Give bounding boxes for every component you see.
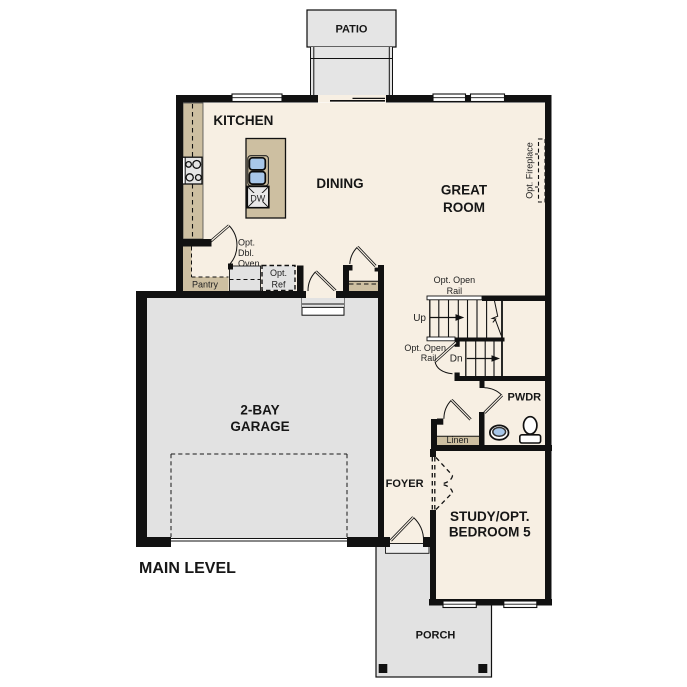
svg-text:Opt. Fireplace: Opt. Fireplace xyxy=(525,142,535,199)
svg-text:Opt. Open: Opt. Open xyxy=(434,275,476,285)
svg-text:Opt.: Opt. xyxy=(238,238,255,248)
svg-text:Opt. Open: Opt. Open xyxy=(404,343,446,353)
svg-text:Dn: Dn xyxy=(450,354,463,365)
svg-text:Pantry: Pantry xyxy=(192,280,219,290)
svg-text:FOYER: FOYER xyxy=(386,478,424,490)
svg-text:GARAGE: GARAGE xyxy=(230,419,289,434)
svg-text:DW: DW xyxy=(250,193,265,203)
svg-text:Oven: Oven xyxy=(238,259,260,269)
svg-text:MAIN LEVEL: MAIN LEVEL xyxy=(139,560,236,577)
svg-text:Linen: Linen xyxy=(446,435,468,445)
svg-text:ROOM: ROOM xyxy=(443,200,485,215)
svg-text:GREAT: GREAT xyxy=(441,183,488,198)
svg-text:KITCHEN: KITCHEN xyxy=(213,113,273,128)
svg-text:PORCH: PORCH xyxy=(416,629,456,641)
svg-text:Ref: Ref xyxy=(271,280,286,290)
svg-text:PWDR: PWDR xyxy=(507,392,541,404)
svg-text:Rail: Rail xyxy=(447,286,463,296)
svg-text:Up: Up xyxy=(413,313,426,324)
svg-text:DINING: DINING xyxy=(316,176,363,191)
svg-text:Dbl.: Dbl. xyxy=(238,248,254,258)
svg-text:Rail: Rail xyxy=(421,353,437,363)
svg-text:PATIO: PATIO xyxy=(336,23,368,35)
svg-text:BEDROOM 5: BEDROOM 5 xyxy=(449,524,531,539)
svg-text:2-BAY: 2-BAY xyxy=(240,403,279,418)
svg-text:Opt.: Opt. xyxy=(270,268,287,278)
svg-text:STUDY/OPT.: STUDY/OPT. xyxy=(450,509,530,524)
